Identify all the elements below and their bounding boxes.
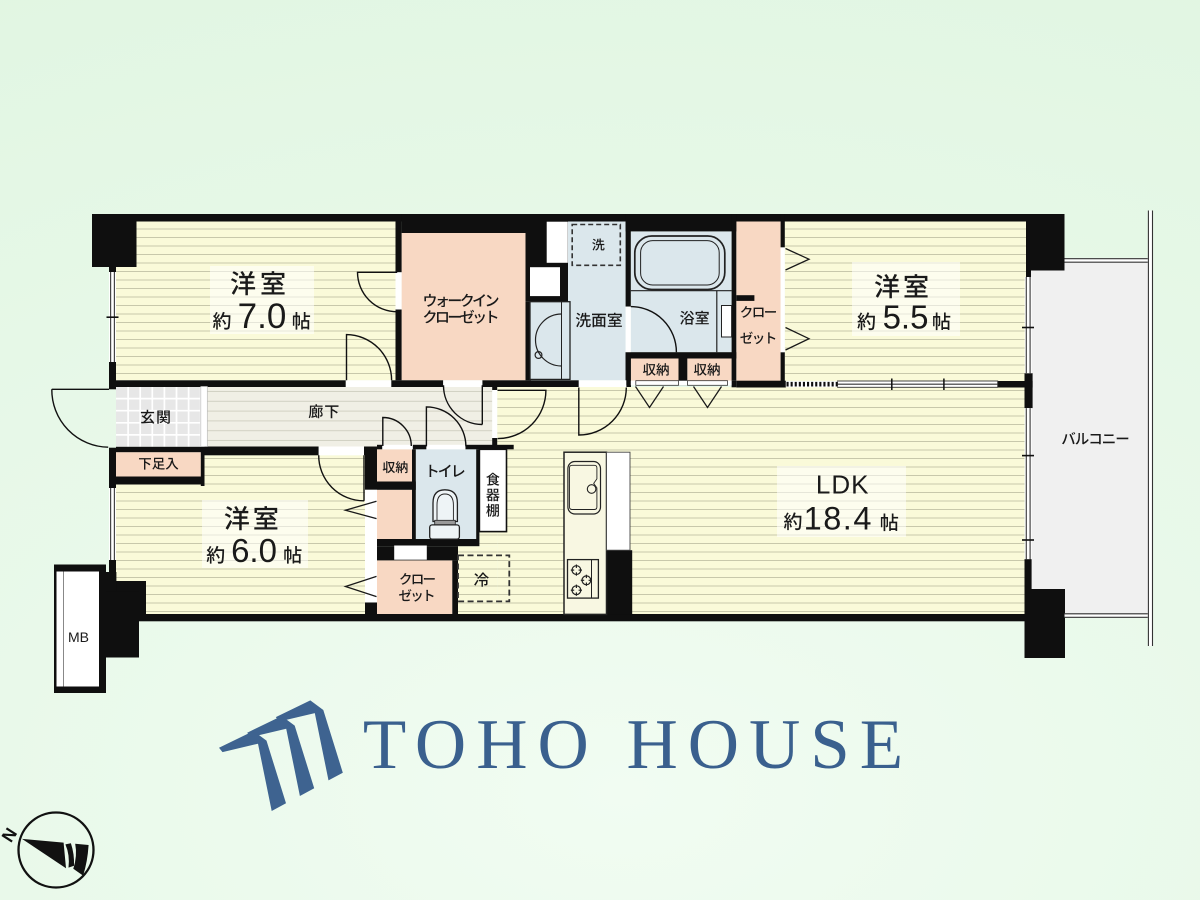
svg-text:LDK: LDK <box>816 469 870 499</box>
svg-text:6.0: 6.0 <box>231 532 277 569</box>
svg-text:18.4: 18.4 <box>804 500 873 536</box>
svg-text:N: N <box>0 824 21 845</box>
svg-text:5.5: 5.5 <box>883 299 929 336</box>
svg-text:7.0: 7.0 <box>238 297 287 336</box>
svg-text:MB: MB <box>68 629 89 645</box>
svg-text:TOHO HOUSE: TOHO HOUSE <box>363 706 913 784</box>
